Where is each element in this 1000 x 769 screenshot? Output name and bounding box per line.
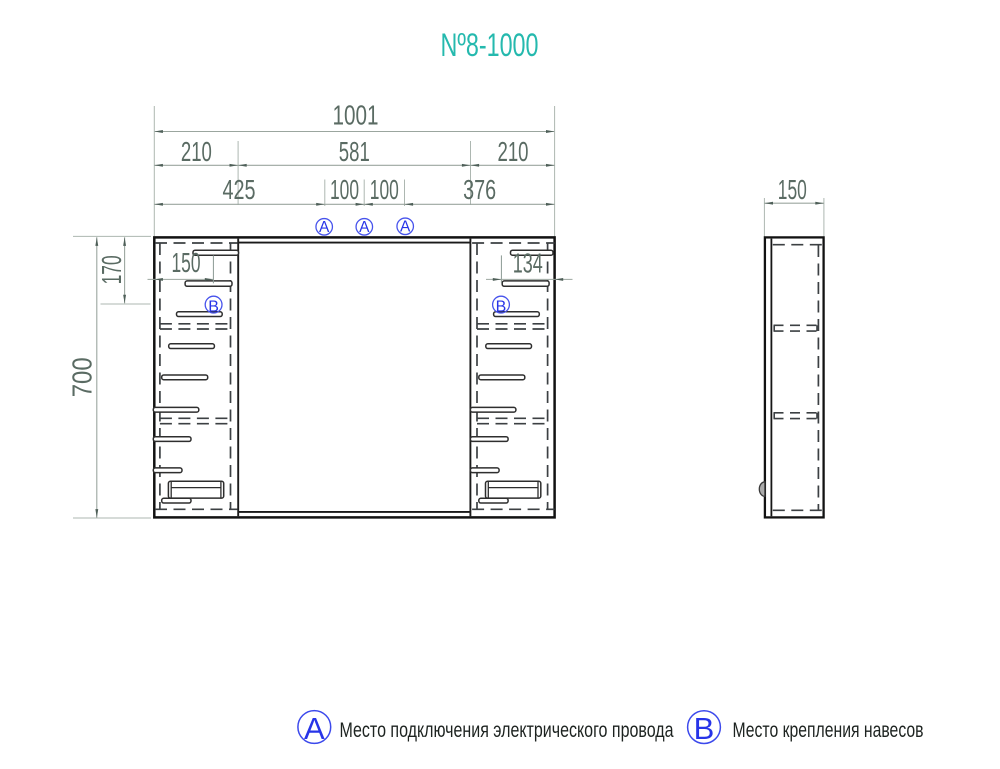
svg-text:Nº8-1000: Nº8-1000 xyxy=(441,27,539,63)
svg-text:A: A xyxy=(319,219,330,236)
svg-text:100: 100 xyxy=(330,174,359,205)
svg-text:Место подключения электрическо: Место подключения электрического провода xyxy=(340,719,674,742)
svg-text:210: 210 xyxy=(181,136,212,167)
svg-text:1001: 1001 xyxy=(333,100,379,131)
svg-text:B: B xyxy=(694,711,715,746)
svg-text:150: 150 xyxy=(172,247,201,278)
svg-text:150: 150 xyxy=(778,174,807,205)
svg-text:700: 700 xyxy=(66,357,97,397)
svg-text:134: 134 xyxy=(513,248,543,279)
svg-text:376: 376 xyxy=(463,174,496,205)
svg-text:170: 170 xyxy=(96,255,127,284)
svg-text:425: 425 xyxy=(223,174,256,205)
svg-text:210: 210 xyxy=(498,136,529,167)
svg-text:100: 100 xyxy=(370,174,399,205)
svg-text:B: B xyxy=(496,299,507,316)
svg-text:A: A xyxy=(400,219,411,236)
svg-text:B: B xyxy=(208,299,219,316)
svg-text:Место крепления навесов: Место крепления навесов xyxy=(733,719,924,742)
svg-text:A: A xyxy=(359,219,370,236)
svg-text:A: A xyxy=(304,711,325,746)
svg-text:581: 581 xyxy=(339,136,370,167)
